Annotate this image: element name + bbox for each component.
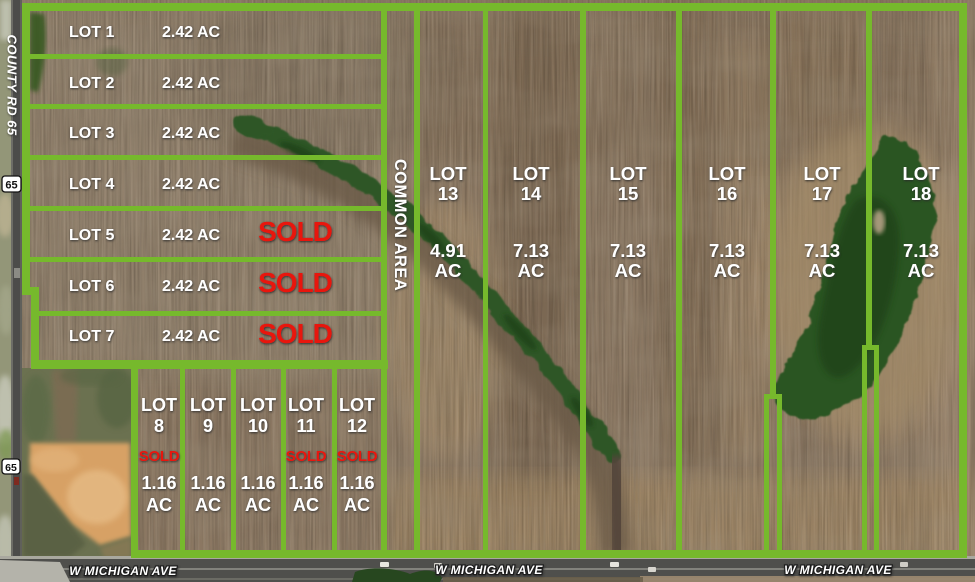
svg-text:AC: AC: [245, 495, 271, 515]
svg-text:AC: AC: [435, 260, 462, 281]
svg-text:1.16: 1.16: [240, 473, 275, 493]
svg-text:2.42 AC: 2.42 AC: [162, 75, 221, 92]
svg-text:LOT: LOT: [190, 395, 226, 415]
svg-text:LOT 2: LOT 2: [69, 75, 114, 92]
svg-text:LOT: LOT: [610, 163, 648, 184]
svg-text:LOT: LOT: [804, 163, 842, 184]
svg-text:1.16: 1.16: [141, 473, 176, 493]
svg-text:SOLD: SOLD: [286, 448, 327, 465]
svg-text:AC: AC: [293, 495, 319, 515]
svg-text:LOT 6: LOT 6: [69, 278, 114, 295]
svg-text:7.13: 7.13: [709, 240, 745, 261]
svg-text:LOT 5: LOT 5: [69, 227, 114, 244]
svg-text:W MICHIGAN AVE: W MICHIGAN AVE: [435, 563, 543, 577]
svg-text:AC: AC: [809, 260, 836, 281]
svg-text:W MICHIGAN AVE: W MICHIGAN AVE: [69, 564, 177, 578]
svg-text:14: 14: [521, 183, 542, 204]
svg-text:1.16: 1.16: [339, 473, 374, 493]
svg-text:7.13: 7.13: [804, 240, 840, 261]
svg-text:LOT: LOT: [430, 163, 468, 184]
svg-text:12: 12: [347, 416, 367, 436]
svg-text:AC: AC: [908, 260, 935, 281]
svg-text:LOT: LOT: [141, 395, 177, 415]
svg-text:W MICHIGAN AVE: W MICHIGAN AVE: [784, 563, 892, 577]
svg-text:AC: AC: [714, 260, 741, 281]
svg-text:AC: AC: [146, 495, 172, 515]
svg-text:LOT: LOT: [339, 395, 375, 415]
svg-text:2.42 AC: 2.42 AC: [162, 24, 221, 41]
svg-text:65: 65: [5, 180, 17, 192]
svg-text:LOT 3: LOT 3: [69, 125, 114, 142]
svg-text:10: 10: [248, 416, 268, 436]
svg-text:SOLD: SOLD: [258, 216, 333, 247]
svg-text:18: 18: [911, 183, 932, 204]
svg-text:7.13: 7.13: [610, 240, 646, 261]
svg-text:SOLD: SOLD: [139, 448, 180, 465]
svg-text:LOT: LOT: [288, 395, 324, 415]
svg-text:4.91: 4.91: [430, 240, 466, 261]
svg-text:LOT 4: LOT 4: [69, 176, 114, 193]
svg-text:2.42 AC: 2.42 AC: [162, 227, 221, 244]
svg-text:LOT 7: LOT 7: [69, 328, 114, 345]
svg-text:13: 13: [438, 183, 459, 204]
svg-text:11: 11: [296, 416, 315, 436]
svg-text:LOT: LOT: [709, 163, 747, 184]
svg-text:17: 17: [812, 183, 833, 204]
svg-text:AC: AC: [518, 260, 545, 281]
svg-text:2.42 AC: 2.42 AC: [162, 125, 221, 142]
svg-text:LOT: LOT: [903, 163, 941, 184]
svg-text:LOT: LOT: [240, 395, 276, 415]
svg-text:2.42 AC: 2.42 AC: [162, 328, 221, 345]
svg-text:AC: AC: [344, 495, 370, 515]
svg-text:2.42 AC: 2.42 AC: [162, 176, 221, 193]
svg-text:15: 15: [618, 183, 639, 204]
svg-text:2.42 AC: 2.42 AC: [162, 278, 221, 295]
svg-text:65: 65: [5, 462, 17, 474]
svg-text:SOLD: SOLD: [337, 448, 378, 465]
svg-text:SOLD: SOLD: [258, 267, 333, 298]
svg-text:7.13: 7.13: [903, 240, 939, 261]
svg-text:8: 8: [154, 416, 164, 436]
svg-text:1.16: 1.16: [288, 473, 323, 493]
svg-text:SOLD: SOLD: [258, 318, 333, 349]
svg-text:16: 16: [717, 183, 738, 204]
svg-text:1.16: 1.16: [190, 473, 225, 493]
svg-text:AC: AC: [615, 260, 642, 281]
svg-text:9: 9: [203, 416, 213, 436]
svg-text:COMMON AREA: COMMON AREA: [391, 159, 409, 291]
svg-text:COUNTY RD 65: COUNTY RD 65: [5, 34, 20, 135]
svg-text:AC: AC: [195, 495, 221, 515]
svg-text:LOT 1: LOT 1: [69, 24, 114, 41]
svg-text:7.13: 7.13: [513, 240, 549, 261]
svg-text:LOT: LOT: [513, 163, 551, 184]
